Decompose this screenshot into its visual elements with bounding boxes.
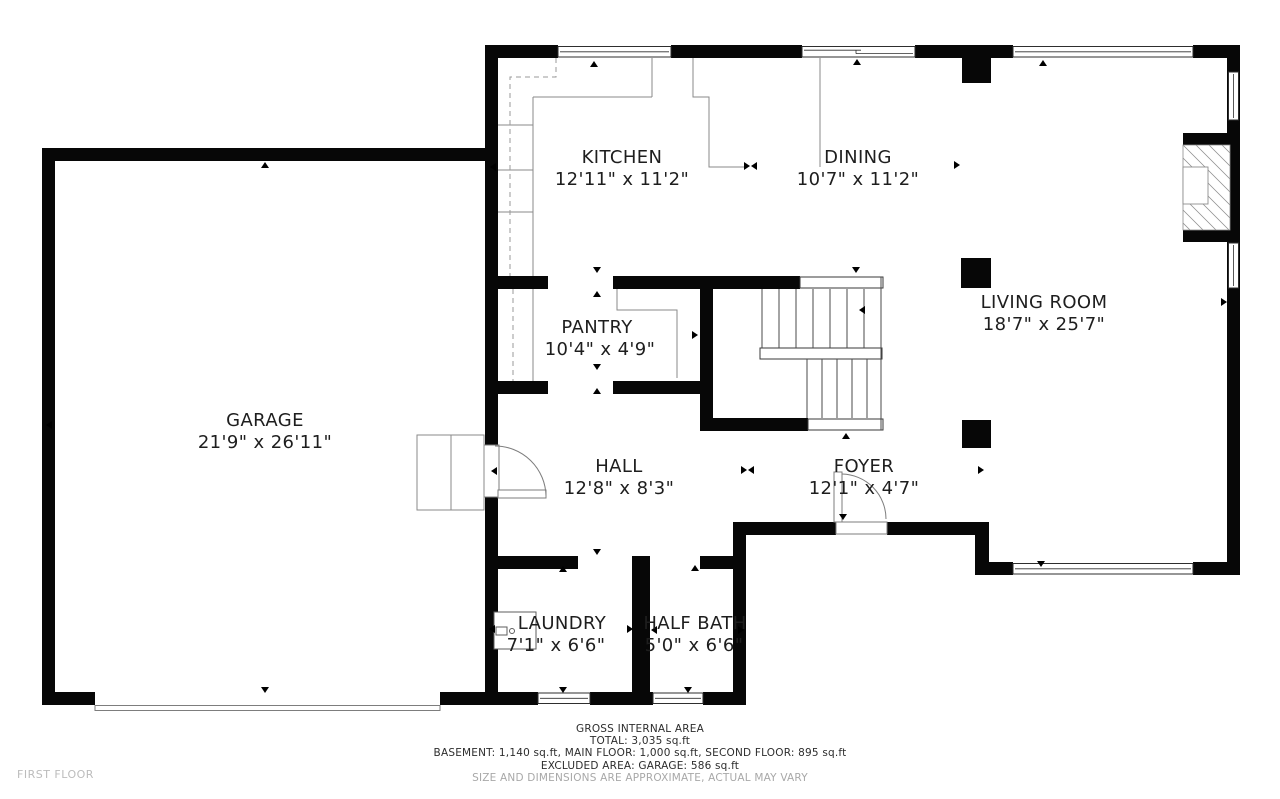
wall-halfbath-top <box>700 556 746 569</box>
room-label-living: LIVING ROOM <box>981 292 1108 313</box>
window-halfbath-bottom <box>653 693 703 704</box>
floor-areas: BASEMENT: 1,140 sq.ft, MAIN FLOOR: 1,000… <box>0 747 1280 759</box>
wall-top-3 <box>915 45 1013 58</box>
room-dims-hall: 12'8" x 8'3" <box>564 478 675 499</box>
kitchen-peninsula <box>693 58 746 167</box>
room-dims-pantry: 10'4" x 4'9" <box>545 339 656 360</box>
wall-foyer-connector <box>975 522 989 575</box>
room-label-foyer: FOYER <box>834 456 894 477</box>
room-label-pantry: PANTRY <box>561 317 633 338</box>
wall-foyer-front-2 <box>887 522 985 535</box>
room-dims-halfbath: 5'0" x 6'6" <box>645 635 744 656</box>
stair-top-bar <box>800 277 883 288</box>
stair-bottom-bar <box>808 419 883 430</box>
window-right-upper <box>1229 72 1239 120</box>
window-living-top <box>1013 47 1193 58</box>
wall-pantry-bottom-left <box>485 381 548 394</box>
excluded-area: EXCLUDED AREA: GARAGE: 586 sq.ft <box>0 760 1280 772</box>
wall-living-bottom-2 <box>1193 562 1240 575</box>
total-area: TOTAL: 3,035 sq.ft <box>0 735 1280 747</box>
room-dims-dining: 10'7" x 11'2" <box>797 169 919 190</box>
room-dims-foyer: 12'1" x 4'7" <box>809 478 920 499</box>
garage-vehicle-door <box>95 706 440 711</box>
fireplace <box>1183 133 1230 242</box>
column-bottom <box>962 420 991 448</box>
wall-right <box>1227 45 1240 575</box>
column-top <box>962 58 991 83</box>
room-label-dining: DINING <box>824 147 892 168</box>
room-dims-laundry: 7'1" x 6'6" <box>507 635 606 656</box>
room-dims-kitchen: 12'11" x 11'2" <box>555 169 689 190</box>
wall-top-2 <box>671 45 802 58</box>
wall-garage-top <box>42 148 497 161</box>
window-kitchen-top <box>558 47 671 58</box>
wall-stair-left <box>700 276 713 431</box>
stair-landing <box>760 348 882 359</box>
wall-foyer-front-1 <box>733 522 836 535</box>
wall-pantry-top-left <box>485 276 548 289</box>
disclaimer: SIZE AND DIMENSIONS ARE APPROXIMATE, ACT… <box>0 772 1280 784</box>
staircase <box>760 277 883 430</box>
room-dims-garage: 21'9" x 26'11" <box>198 432 332 453</box>
window-laundry-bottom <box>538 693 590 704</box>
sliding-door <box>802 47 915 58</box>
wall-left-lower <box>485 497 498 705</box>
garage-door-swing-arc <box>495 446 546 496</box>
area-summary: GROSS INTERNAL AREA TOTAL: 3,035 sq.ft B… <box>0 723 1280 784</box>
garage-steps <box>417 435 484 510</box>
room-label-kitchen: KITCHEN <box>582 147 663 168</box>
column-middle <box>961 258 991 288</box>
wall-hall-bottom-1 <box>497 556 578 569</box>
room-label-laundry: LAUNDRY <box>518 613 607 634</box>
garage-door-leaf <box>498 490 546 498</box>
floor-label: FIRST FLOOR <box>17 768 94 781</box>
wall-pantry-bottom-right <box>613 381 700 394</box>
wall-stair-bottom <box>700 418 808 431</box>
gross-internal-area-title: GROSS INTERNAL AREA <box>0 723 1280 735</box>
room-labels: KITCHEN 12'11" x 11'2" DINING 10'7" x 11… <box>198 147 1108 656</box>
front-door-threshold <box>836 522 887 534</box>
room-label-halfbath: HALF BATH <box>643 613 746 634</box>
floor-plan: KITCHEN 12'11" x 11'2" DINING 10'7" x 11… <box>0 0 1280 799</box>
wall-garage-bottom-2 <box>440 692 497 705</box>
wall-bottom-laundry-1 <box>497 692 538 705</box>
floorplan-page: { "floor_label": "FIRST FLOOR", "rooms":… <box>0 0 1280 799</box>
room-label-garage: GARAGE <box>226 410 304 431</box>
window-right-lower <box>1229 243 1239 288</box>
room-label-hall: HALL <box>595 456 643 477</box>
room-dims-living: 18'7" x 25'7" <box>983 314 1105 335</box>
firebox <box>1183 167 1208 204</box>
wall-garage-bottom-1 <box>42 692 95 705</box>
